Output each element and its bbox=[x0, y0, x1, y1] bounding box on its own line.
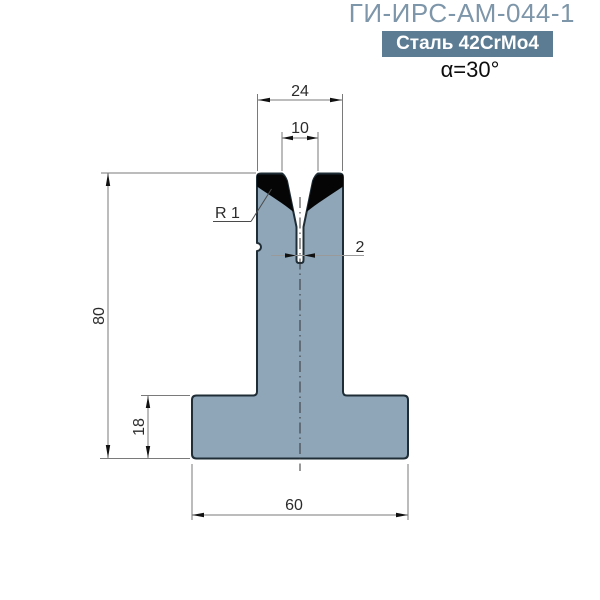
arrow-left-icon bbox=[192, 513, 204, 518]
dim-label-2: 2 bbox=[356, 239, 365, 256]
dim-label-r1: R 1 bbox=[215, 205, 240, 222]
arrow-up-icon bbox=[146, 396, 150, 408]
arrow-left-icon bbox=[258, 98, 270, 103]
dim-v-opening: 10 bbox=[282, 120, 318, 171]
arrow-down-icon bbox=[146, 446, 150, 458]
dim-label-24: 24 bbox=[291, 83, 309, 100]
technical-drawing: 24 10 R 1 2 bbox=[0, 0, 600, 600]
arrow-up-icon bbox=[106, 173, 110, 186]
dim-label-80: 80 bbox=[91, 307, 108, 325]
dim-label-10: 10 bbox=[291, 120, 309, 137]
dim-base-height: 18 bbox=[131, 396, 190, 459]
arrow-right-icon bbox=[330, 98, 342, 103]
arrow-right-icon bbox=[396, 513, 408, 518]
dim-base-width: 60 bbox=[192, 464, 408, 520]
dim-label-18: 18 bbox=[131, 418, 148, 436]
drawing-page: ГИ-ИРС-АМ-044-1 Сталь 42CrMo4 α=30° 24 1… bbox=[0, 0, 600, 600]
dim-label-60: 60 bbox=[285, 497, 303, 514]
arrow-down-icon bbox=[106, 445, 110, 458]
